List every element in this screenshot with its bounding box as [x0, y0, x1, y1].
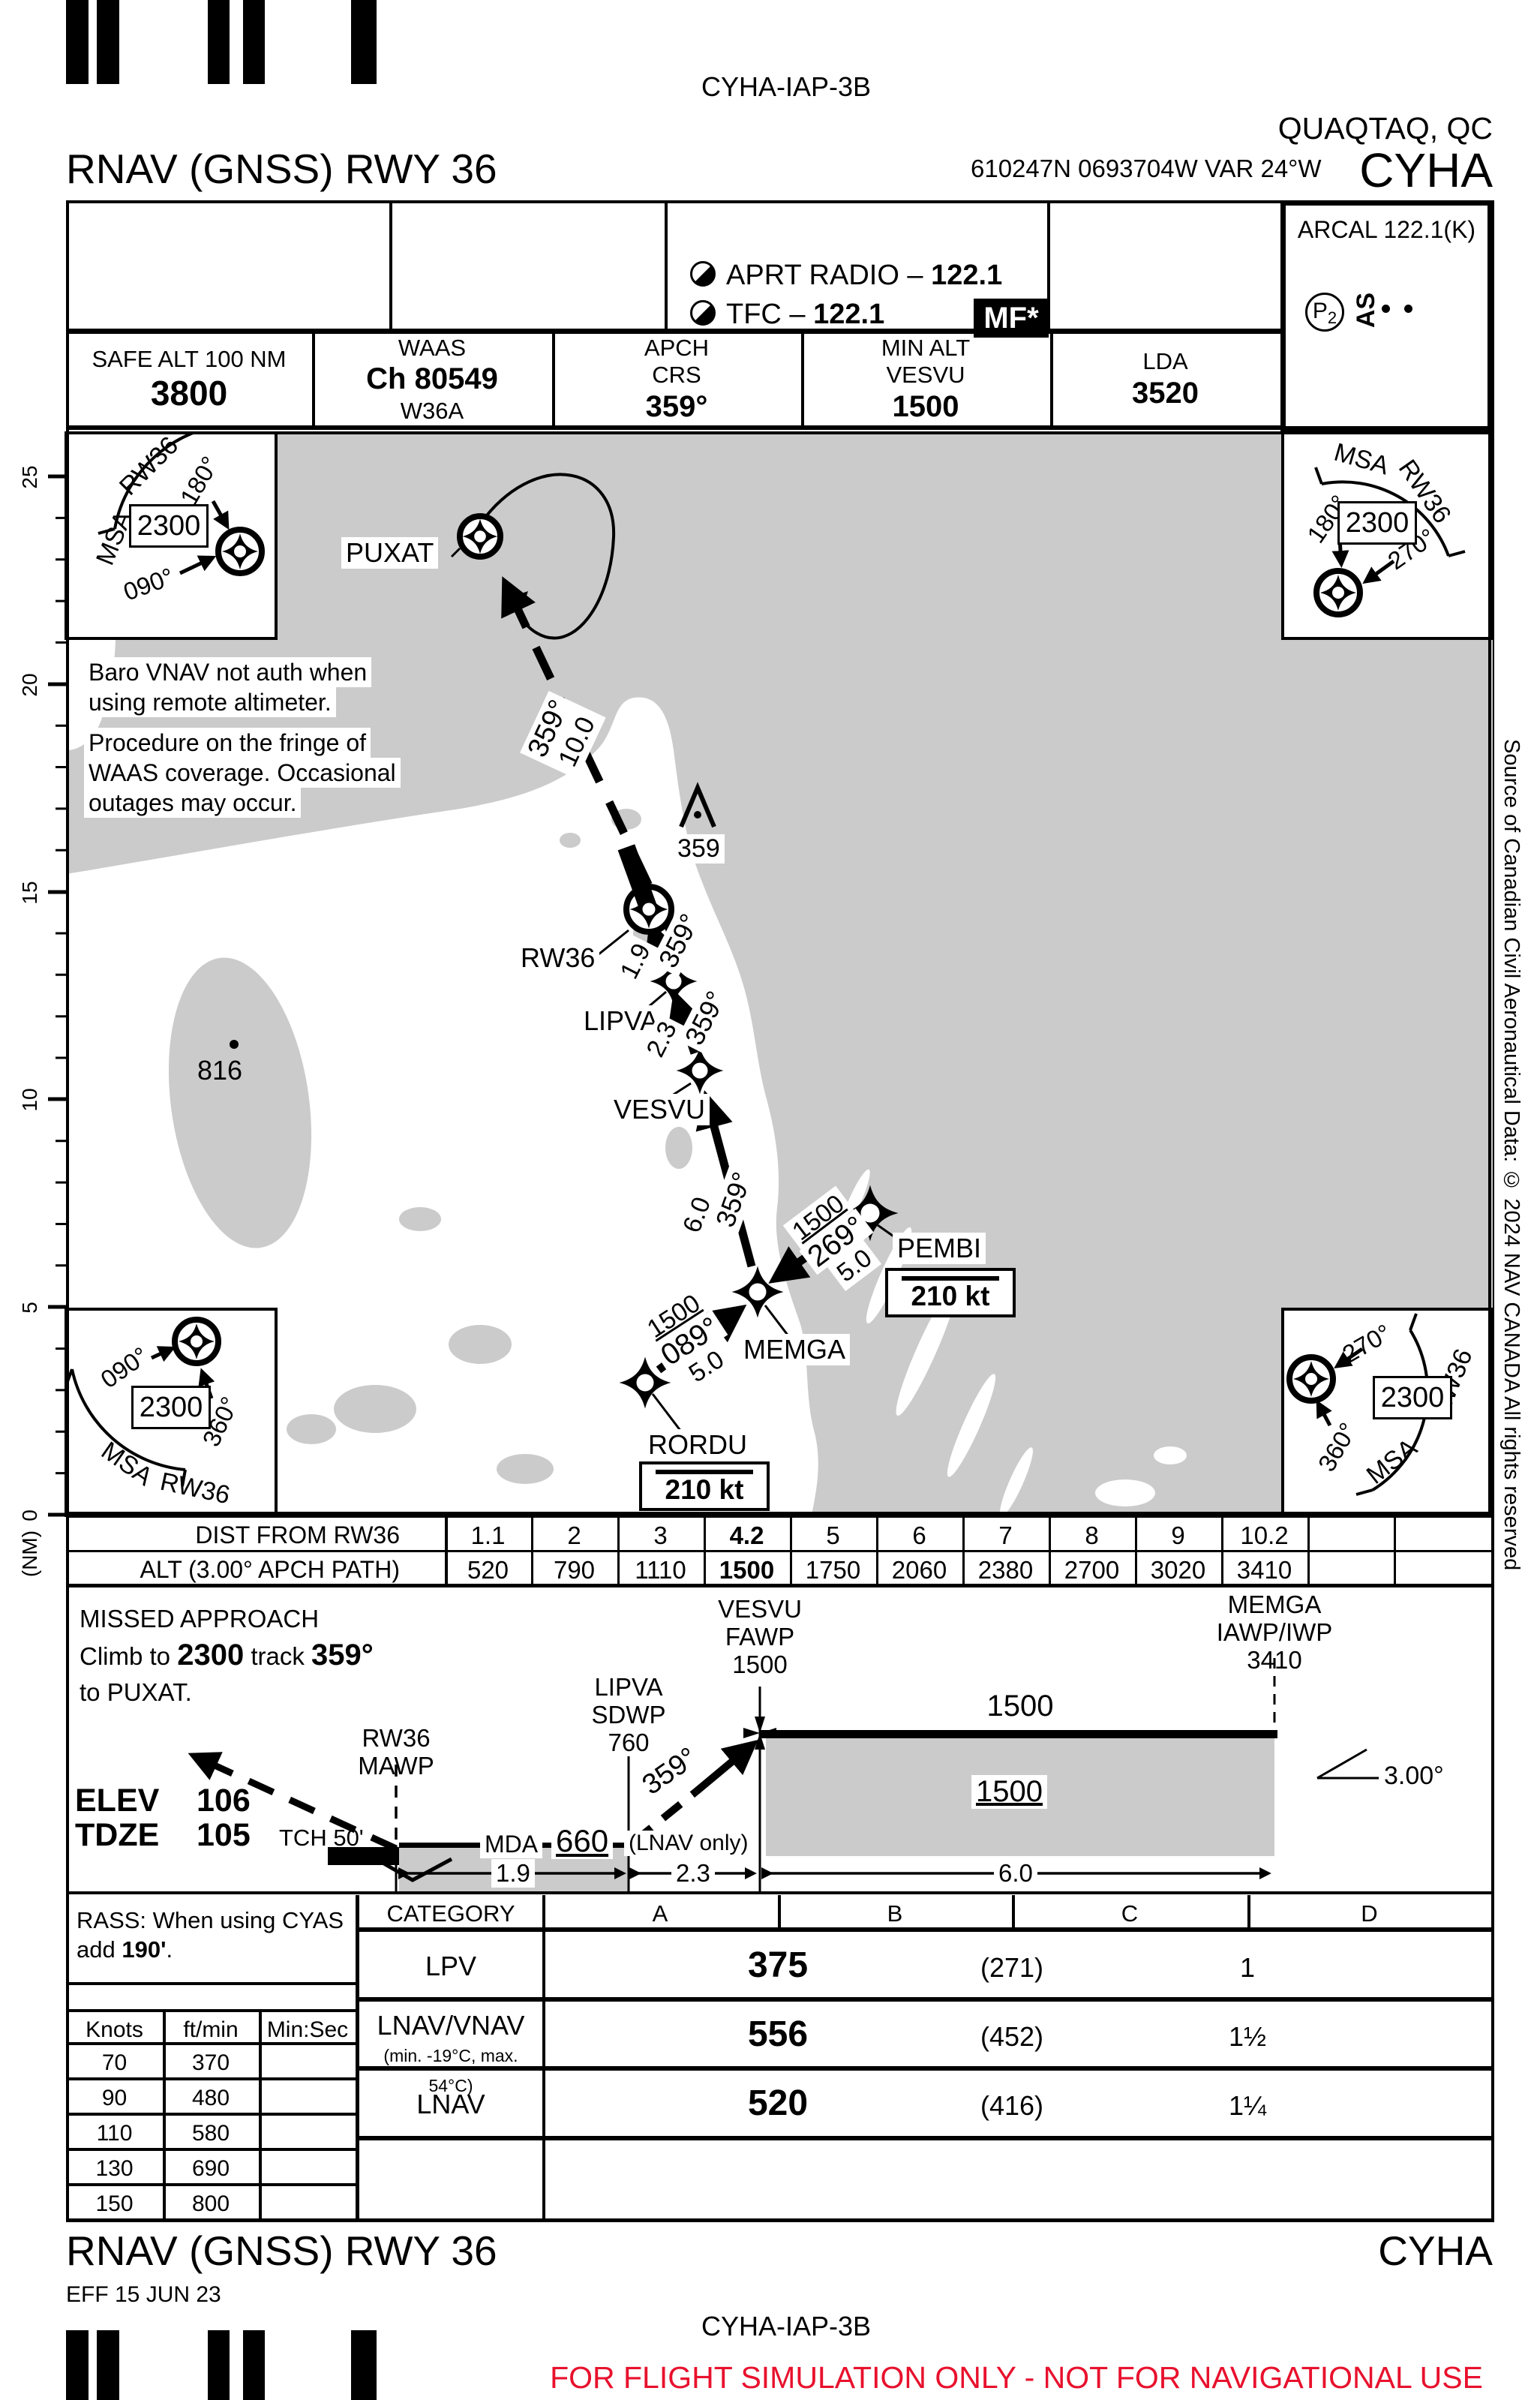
minima-height: 520	[710, 2083, 845, 2124]
rates-fpm: 580	[163, 2121, 259, 2146]
footer-procedure-title: RNAV (GNSS) RWY 36	[66, 2227, 497, 2275]
rates-knots: 130	[66, 2156, 163, 2182]
speed-restriction-rordu: 210 kt	[639, 1461, 770, 1511]
rule	[66, 2183, 359, 2186]
tch-value: TCH 50'	[279, 1825, 364, 1852]
minima-row-label: LNAV	[359, 2089, 542, 2120]
mda-note: (LNAV only)	[624, 1831, 753, 1856]
tdze-value: 105	[197, 1817, 251, 1854]
rule	[542, 1895, 545, 2221]
safe-alt-cell: SAFE ALT 100 NM 3800	[66, 331, 312, 428]
category-b: B	[778, 1900, 1012, 1927]
fix-altitude: 3410	[1199, 1646, 1349, 1674]
safe-alt-label: SAFE ALT 100 NM	[92, 346, 286, 374]
footer-airport-code: CYHA	[1200, 2227, 1493, 2275]
city-name: QUAQTAQ, QC	[1125, 111, 1493, 146]
minima-hat: (416)	[944, 2090, 1079, 2122]
rule	[356, 1927, 1494, 1932]
waypoint-label-rordu: RORDU	[644, 1429, 752, 1461]
simulation-warning: FOR FLIGHT SIMULATION ONLY - NOT FOR NAV…	[525, 2360, 1508, 2395]
rule	[665, 200, 668, 332]
waypoint-label-pembi: PEMBI	[893, 1233, 986, 1264]
rates-header-knots: Knots	[66, 2017, 163, 2043]
registration-mark	[208, 2330, 230, 2400]
lda-label: LDA	[1142, 348, 1187, 376]
rates-fpm: 800	[163, 2191, 259, 2217]
lda-cell: LDA 3520	[1050, 331, 1280, 428]
rule	[66, 2148, 359, 2151]
approach-chart: CYHA-IAP-3B QUAQTAQ, QC CYHA RNAV (GNSS)…	[0, 0, 1540, 2400]
chart-id-bottom: CYHA-IAP-3B	[674, 2311, 899, 2342]
alt-value: 520	[445, 1556, 531, 1584]
minima-visibility: 1	[1180, 1952, 1315, 1984]
alt-value: 3410	[1221, 1556, 1307, 1584]
missed-line2: Climb to 2300 track 359°	[80, 1637, 374, 1675]
rule	[66, 1982, 359, 1985]
msa-altitude: 2300	[129, 504, 209, 548]
climb-altitude: 2300	[177, 1639, 244, 1672]
radio-tfc-freq: 122.1	[813, 299, 884, 330]
dist-value: 2	[531, 1521, 617, 1550]
waas-id: W36A	[401, 398, 464, 425]
rule	[66, 2009, 359, 2012]
data-source-credit: Source of Canadian Civil Aeronautical Da…	[1499, 739, 1523, 1684]
registration-mark	[243, 0, 265, 84]
radio-aprt-line: APRT RADIO – 122.1	[690, 260, 1002, 292]
dist-value: 3	[617, 1521, 704, 1550]
level-altitude-min: 1500	[971, 1775, 1047, 1809]
registration-mark	[66, 0, 89, 84]
dist-row-label: DIST FROM RW36	[66, 1521, 400, 1549]
scale-unit: (NM)	[18, 1520, 42, 1587]
fix-name: RW36	[321, 1724, 471, 1752]
category-a: A	[542, 1900, 778, 1927]
procedure-title: RNAV (GNSS) RWY 36	[66, 145, 497, 193]
climb-track: 359°	[311, 1639, 374, 1672]
radio-tfc-label: TFC –	[726, 299, 813, 330]
minima-height: 375	[710, 1945, 845, 1986]
tdze-label: TDZE	[75, 1817, 159, 1854]
fix-altitude: 1500	[685, 1651, 835, 1678]
rule	[66, 1515, 1494, 1518]
alt-value: 1110	[617, 1556, 704, 1584]
alt-value: 2700	[1049, 1556, 1135, 1584]
fix-name: MEMGA	[1199, 1590, 1349, 1618]
spot-elevation: 816	[197, 1055, 242, 1086]
waypoint-label-vesvu: VESVU	[609, 1094, 710, 1125]
min-alt-value: 1500	[893, 389, 959, 425]
arcal-label: ARCAL 122.1(K)	[1286, 216, 1487, 244]
rass-line1: RASS: When using CYAS	[77, 1906, 344, 1935]
radio-icon	[690, 261, 716, 287]
note-baro-vnav: Baro VNAV not auth when using remote alt…	[84, 657, 371, 717]
rule	[66, 1550, 1494, 1552]
min-alt-cell: MIN ALT VESVU 1500	[801, 331, 1050, 428]
rass-line2: add 190'.	[77, 1935, 344, 1964]
effective-date: EFF 15 JUN 23	[66, 2282, 221, 2308]
p2-sub: 2	[1328, 308, 1337, 327]
fix-name: VESVU	[685, 1595, 835, 1623]
arcal-box: ARCAL 122.1(K) P2 AS	[1280, 200, 1493, 431]
fix-role: MAWP	[321, 1752, 471, 1780]
alt-row-label: ALT (3.00° APCH PATH)	[66, 1556, 400, 1584]
registration-mark	[97, 2330, 119, 2400]
category-c: C	[1012, 1900, 1247, 1927]
rass-note: RASS: When using CYAS add 190'.	[77, 1906, 344, 1964]
text: track	[244, 1642, 311, 1670]
p2-symbol: P2	[1305, 293, 1344, 332]
msa-altitude: 2300	[1373, 1376, 1452, 1419]
rass-add-value: 190'	[122, 1936, 166, 1963]
minima-row-label: LNAV/VNAV (min. -19°C, max. 54°C)	[359, 2011, 542, 2101]
scale-label: 5	[18, 1285, 42, 1330]
waas-cell: WAAS Ch 80549 W36A	[312, 331, 552, 428]
rule	[1394, 1515, 1396, 1587]
rule	[356, 2136, 1494, 2140]
msa-altitude: 2300	[131, 1386, 211, 1429]
elev-value: 106	[197, 1783, 251, 1819]
note-line: Procedure on the fringe of	[84, 728, 371, 758]
registration-mark	[97, 0, 119, 84]
note-waas-coverage: Procedure on the fringe of WAAS coverage…	[84, 728, 401, 818]
profile-fix-rw36: RW36 MAWP	[321, 1724, 471, 1780]
note-line: Baro VNAV not auth when	[84, 657, 371, 687]
position-line: 610247N 0693704W VAR 24°W	[971, 155, 1322, 183]
rates-knots: 110	[66, 2121, 163, 2146]
descent-path	[696, 1747, 750, 1792]
rule	[66, 2218, 1494, 2222]
waypoint-label-puxat: PUXAT	[341, 537, 438, 569]
as-label: AS	[1352, 293, 1381, 328]
rule	[389, 200, 392, 332]
registration-mark	[243, 2330, 265, 2400]
rule	[1307, 1515, 1310, 1587]
rule	[66, 2077, 359, 2080]
level-altitude-line	[760, 1730, 1277, 1738]
p2-letter: P	[1313, 299, 1328, 323]
missed-approach-text: MISSED APPROACH Climb to 2300 track 359°…	[80, 1601, 374, 1711]
rule	[356, 1997, 1494, 2002]
fix-role: SDWP	[587, 1701, 671, 1729]
mda-value: 660	[551, 1823, 613, 1859]
registration-mark	[66, 2330, 89, 2400]
rates-knots: 70	[66, 2050, 163, 2076]
level-altitude: 1500	[975, 1690, 1065, 1723]
note-line: outages may occur.	[84, 788, 301, 818]
rates-header-fpm: ft/min	[163, 2017, 259, 2043]
profile-fix-vesvu: VESVU FAWP 1500	[685, 1595, 835, 1678]
dist-value: 10.2	[1221, 1521, 1307, 1550]
scale-major-ticks	[48, 476, 66, 1515]
glide-angle: 3.00°	[1384, 1762, 1444, 1791]
safe-alt-value: 3800	[151, 373, 227, 413]
fix-altitude: 760	[603, 1729, 653, 1756]
radio-tfc-line: TFC – 122.1	[690, 299, 884, 331]
dist-value: 5	[790, 1521, 876, 1550]
missed-line3: to PUXAT.	[80, 1675, 374, 1711]
rates-fpm: 370	[163, 2050, 259, 2076]
glide-angle-icon	[1317, 1750, 1379, 1778]
rates-knots: 90	[66, 2086, 163, 2111]
alt-value: 2380	[962, 1556, 1049, 1584]
alt-value-faf: 1500	[704, 1556, 790, 1584]
apch-crs-cell: APCH CRS 359°	[552, 331, 801, 428]
dist-value: 6	[876, 1521, 962, 1550]
dist-value: 9	[1135, 1521, 1221, 1550]
spot-elevation-dot	[230, 1040, 239, 1049]
mda-label: MDA	[480, 1831, 542, 1858]
fix-role: FAWP	[685, 1623, 835, 1651]
waypoint-label-rw36: RW36	[516, 942, 599, 974]
waypoint-puxat-icon	[460, 516, 500, 557]
waas-label: WAAS	[398, 335, 466, 362]
minima-visibility: 1¼	[1180, 2090, 1315, 2122]
rates-fpm: 480	[163, 2086, 259, 2111]
dist-value: 1.1	[445, 1521, 531, 1550]
rule	[66, 1891, 1494, 1894]
alt-value: 790	[531, 1556, 617, 1584]
note-line: WAAS coverage. Occasional	[84, 758, 401, 788]
elev-label: ELEV	[75, 1783, 159, 1819]
msa-altitude: 2300	[1337, 501, 1417, 545]
dist-value: 8	[1049, 1521, 1135, 1550]
missed-line1: MISSED APPROACH	[80, 1601, 374, 1637]
radio-aprt-label: APRT RADIO –	[726, 260, 931, 291]
scale-minor-ticks	[56, 518, 66, 1473]
speed-restriction-pembi: 210 kt	[885, 1268, 1016, 1317]
rule	[66, 2113, 359, 2116]
label: LNAV/VNAV	[359, 2011, 542, 2041]
scale-label: 25	[18, 455, 42, 500]
alt-value: 1750	[790, 1556, 876, 1584]
fix-name: LIPVA	[590, 1673, 667, 1701]
profile-fix-memga: MEMGA IAWP/IWP 3410	[1199, 1590, 1349, 1674]
minima-visibility: 1½	[1180, 2021, 1315, 2053]
minima-hat: (271)	[944, 1952, 1079, 1984]
segment-distance-3: 6.0	[994, 1859, 1037, 1888]
minima-height: 556	[710, 2014, 845, 2055]
registration-mark	[351, 2330, 377, 2400]
dot-icon	[1404, 305, 1412, 313]
speed-value: 210 kt	[911, 1281, 990, 1312]
apch-crs-value: 359°	[646, 389, 708, 425]
min-alt-label: MIN ALT	[881, 335, 970, 362]
text: Climb to	[80, 1642, 177, 1670]
waas-channel: Ch 80549	[366, 362, 498, 397]
radio-aprt-freq: 122.1	[931, 260, 1002, 291]
rates-knots: 150	[66, 2191, 163, 2217]
dist-value-faf: 4.2	[704, 1521, 790, 1550]
note-line: using remote altimeter.	[84, 687, 336, 717]
radio-icon	[690, 300, 716, 326]
alt-value: 3020	[1135, 1556, 1221, 1584]
segment-distance-2: 2.3	[671, 1859, 715, 1888]
alt-value: 2060	[876, 1556, 962, 1584]
registration-mark	[208, 0, 230, 84]
dot-icon	[1382, 305, 1390, 313]
minima-row-label: LPV	[359, 1951, 542, 1982]
category-d: D	[1247, 1900, 1491, 1927]
fix-role: IAWP/IWP	[1199, 1618, 1349, 1646]
dist-value: 7	[962, 1521, 1049, 1550]
text: .	[166, 1936, 173, 1963]
obstacle-elevation: 359	[673, 834, 725, 864]
minima-hat: (452)	[944, 2021, 1079, 2053]
lda-value: 3520	[1132, 376, 1199, 411]
apch-label: APCH	[644, 335, 709, 362]
speed-value: 210 kt	[665, 1474, 744, 1506]
text: add	[77, 1936, 122, 1963]
segment-distance-1: 1.9	[491, 1859, 535, 1888]
scale-label: 20	[18, 662, 42, 707]
rates-header-minsec: Min:Sec	[259, 2017, 356, 2043]
rates-fpm: 690	[163, 2156, 259, 2182]
scale-label: 10	[18, 1077, 42, 1122]
chart-id-top: CYHA-IAP-3B	[674, 71, 899, 103]
registration-mark	[351, 0, 377, 84]
min-alt-fix: VESVU	[886, 362, 965, 389]
category-header: CATEGORY	[359, 1900, 542, 1927]
scale-label: 15	[18, 870, 42, 915]
crs-label: CRS	[652, 362, 701, 389]
